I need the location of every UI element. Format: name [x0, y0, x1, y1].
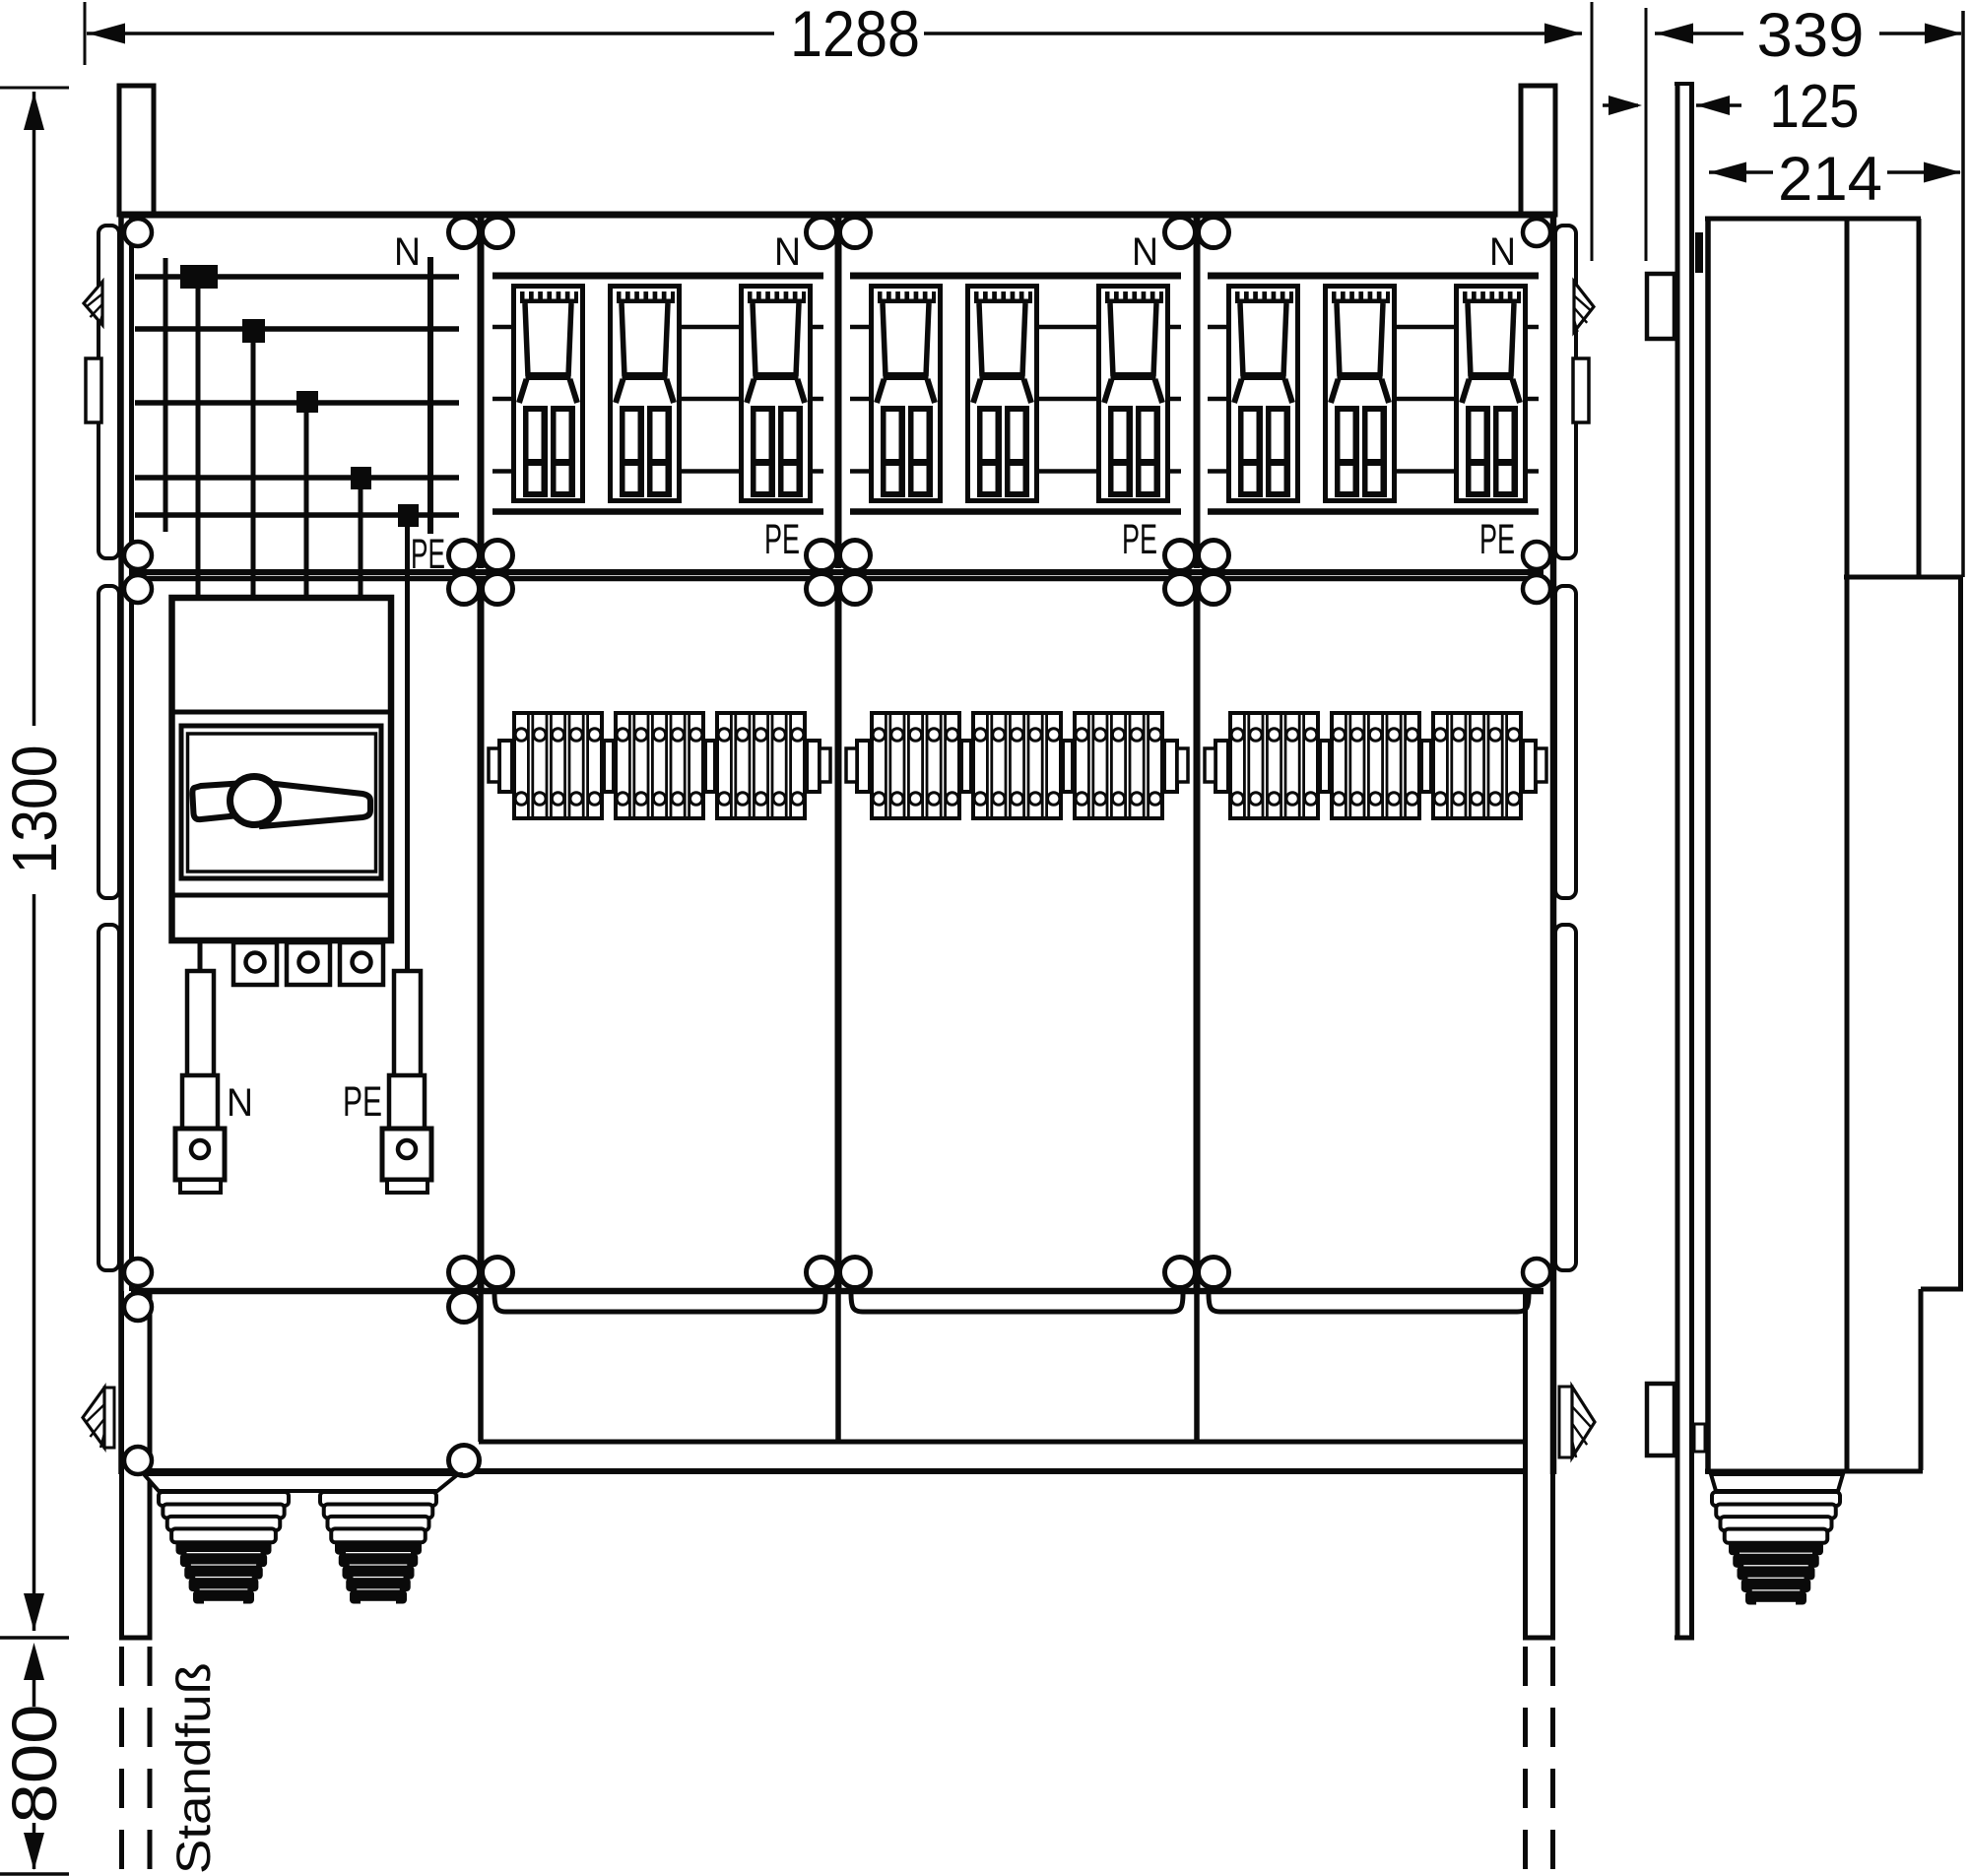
svg-text:PE: PE: [1122, 516, 1157, 563]
svg-text:N: N: [394, 230, 421, 274]
svg-text:N: N: [1489, 230, 1516, 274]
svg-text:PE: PE: [764, 516, 800, 563]
svg-text:PE: PE: [411, 531, 445, 578]
svg-text:PE: PE: [343, 1078, 382, 1126]
svg-text:N: N: [1132, 230, 1158, 274]
svg-text:125: 125: [1770, 73, 1860, 141]
svg-text:N: N: [774, 230, 801, 274]
svg-text:800: 800: [0, 1705, 70, 1824]
svg-text:PE: PE: [1479, 516, 1515, 563]
svg-text:N: N: [227, 1081, 253, 1125]
svg-text:1300: 1300: [0, 745, 70, 874]
svg-text:Standfuß: Standfuß: [168, 1662, 221, 1874]
svg-text:339: 339: [1757, 1, 1865, 70]
svg-text:1288: 1288: [790, 0, 920, 70]
svg-text:214: 214: [1778, 145, 1882, 214]
